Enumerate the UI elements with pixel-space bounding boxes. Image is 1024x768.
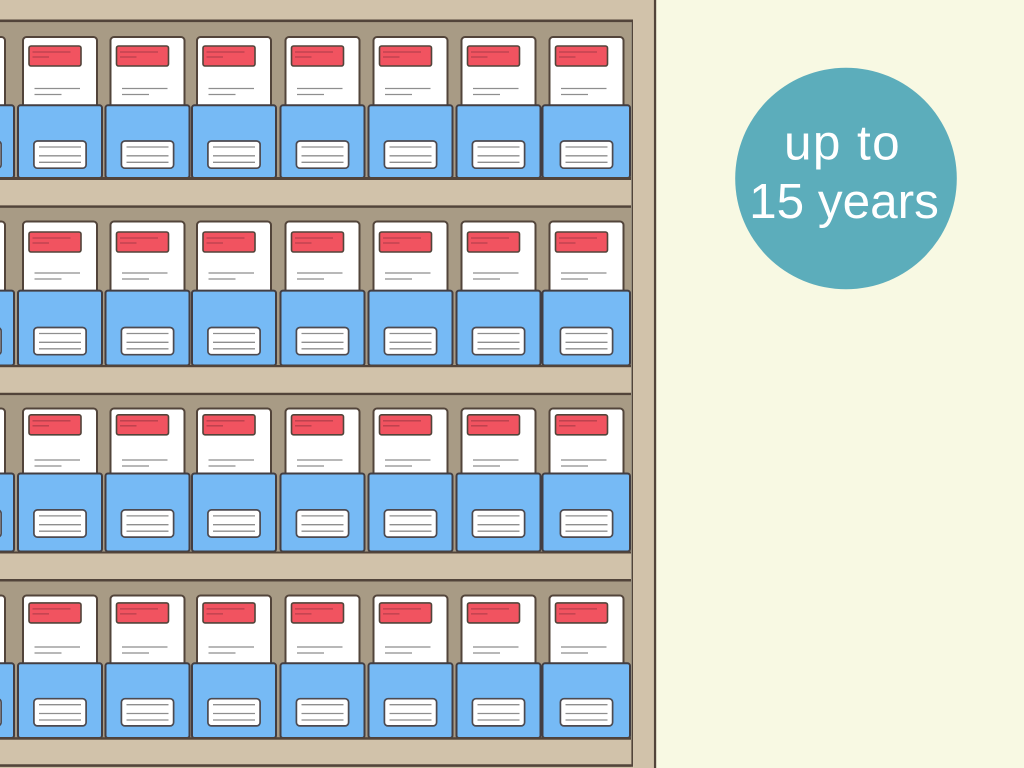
svg-text:up to: up to [784,116,901,171]
svg-text:15 years: 15 years [749,174,939,229]
